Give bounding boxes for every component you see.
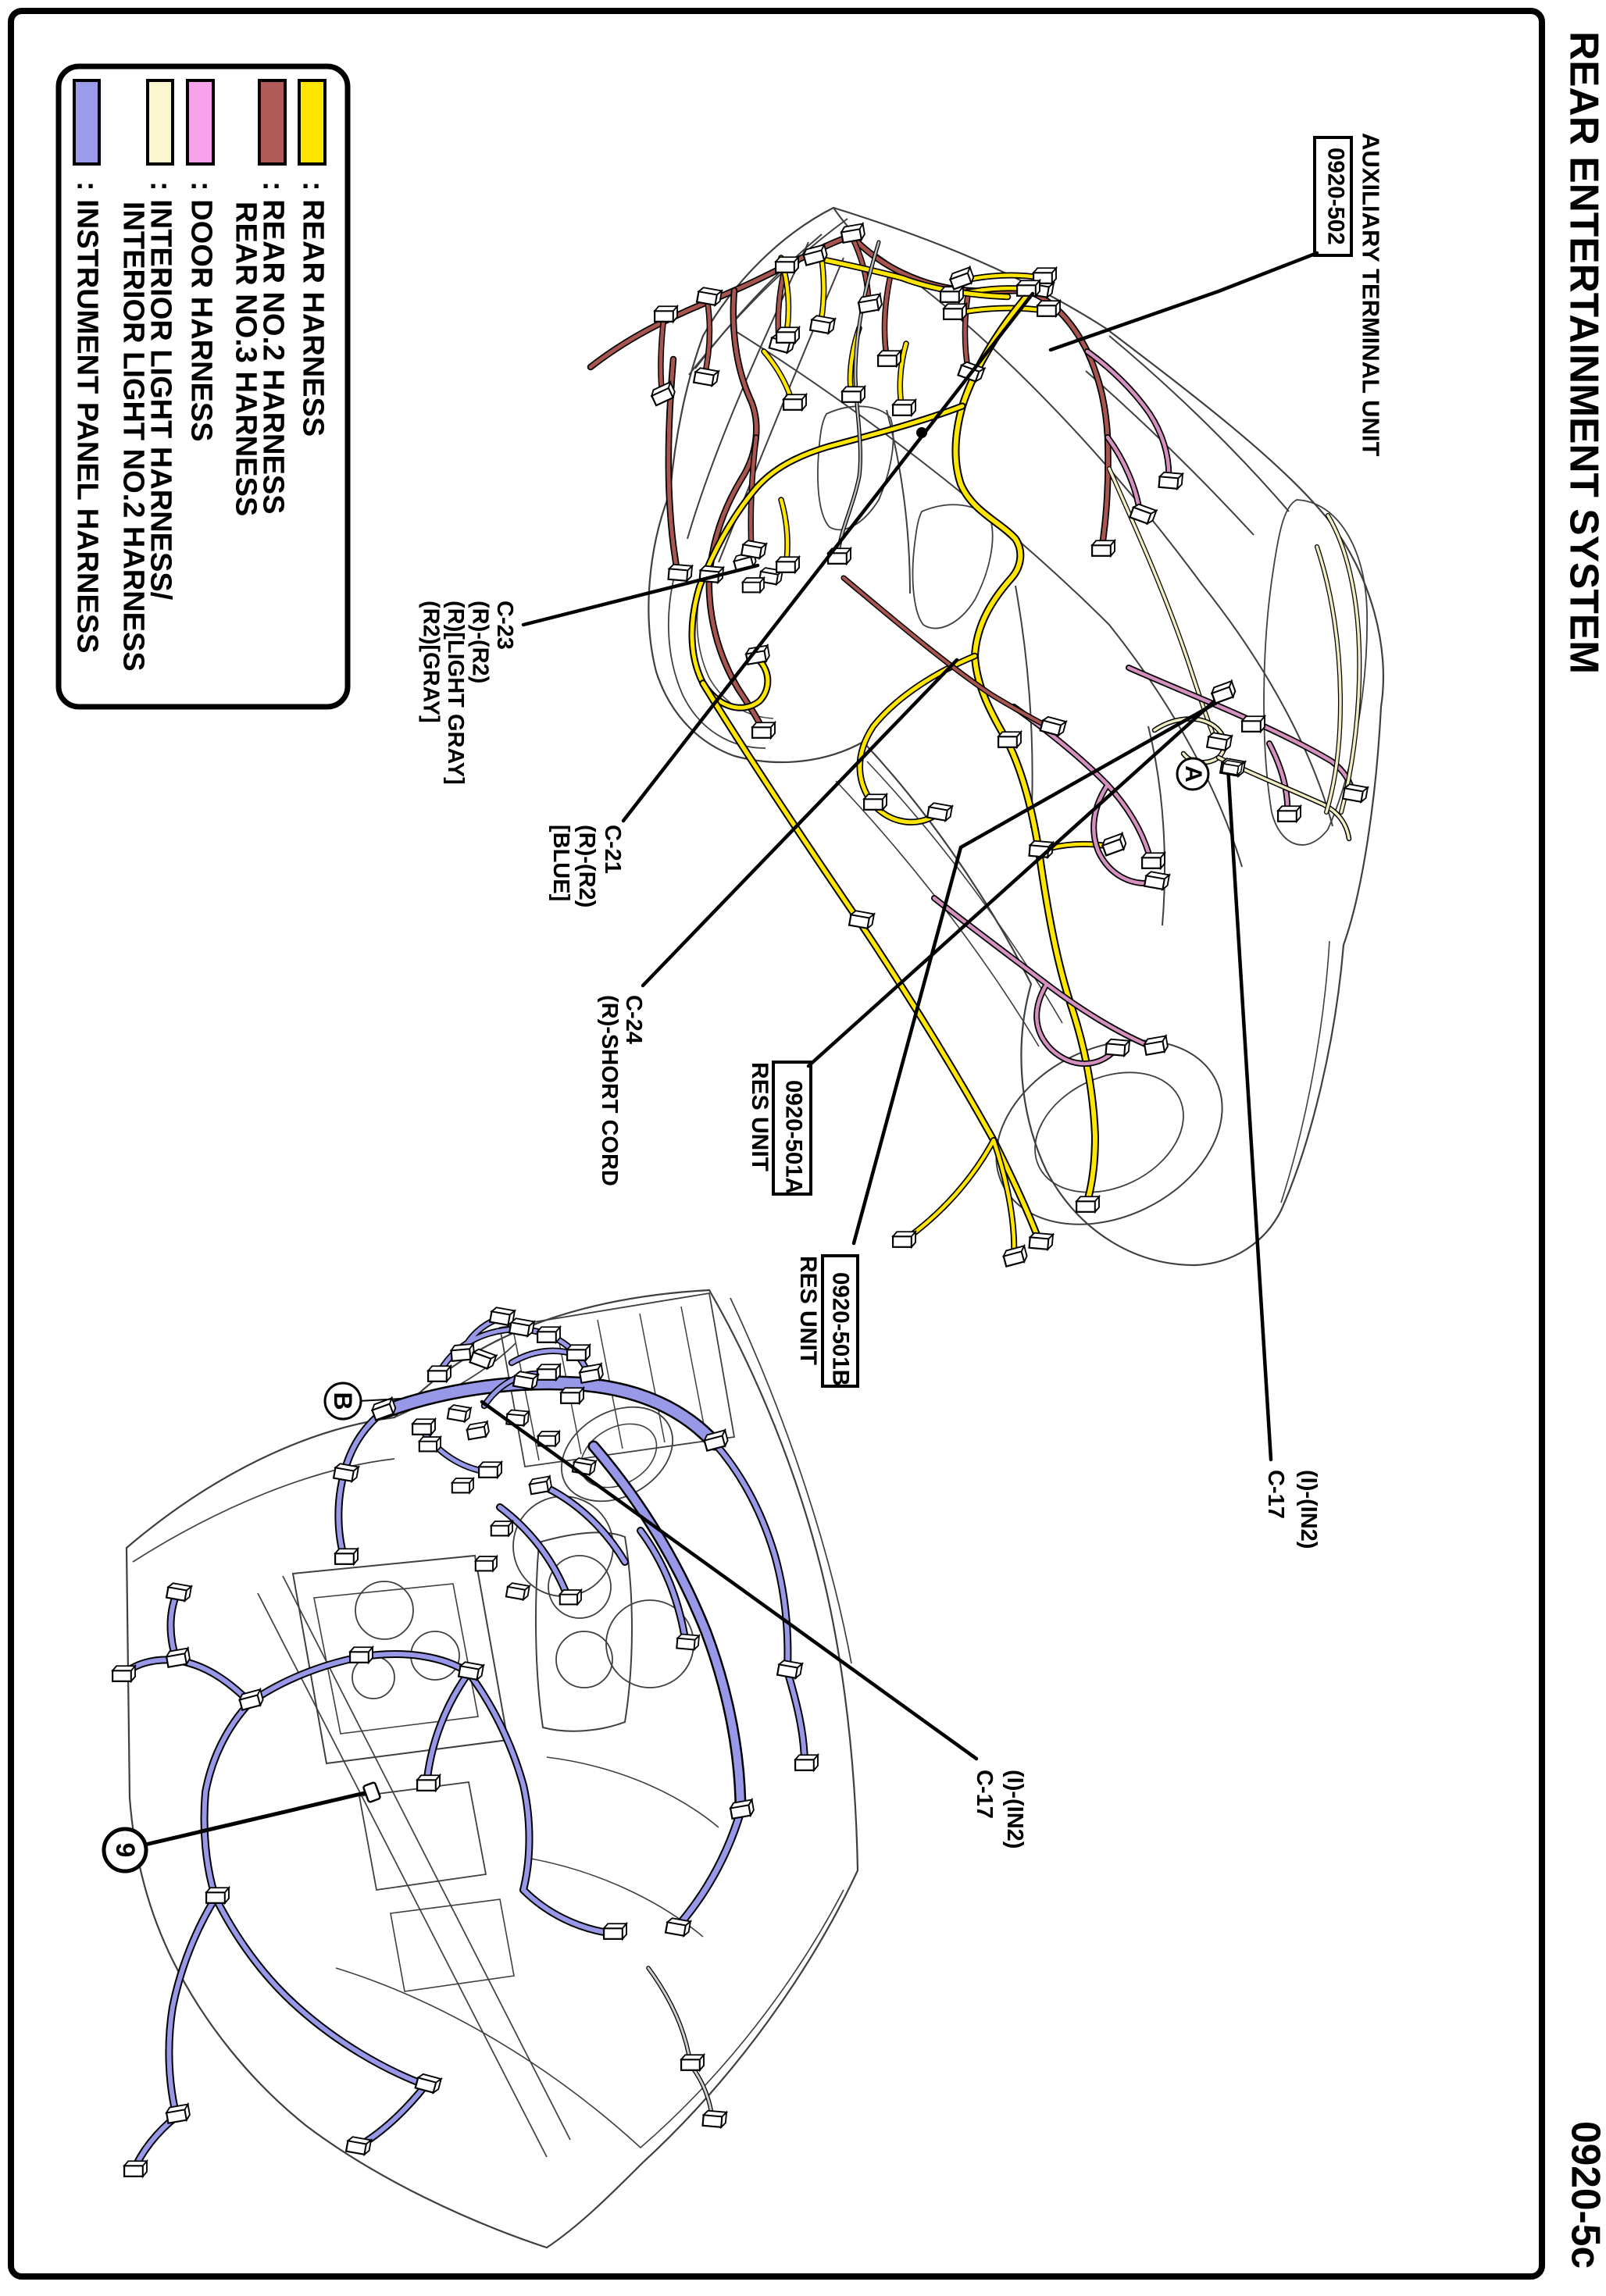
svg-text:(R)-(R2): (R)-(R2) — [574, 825, 599, 907]
svg-text:C-23: C-23 — [492, 601, 517, 650]
svg-text:A: A — [1180, 765, 1206, 783]
svg-text:C-21: C-21 — [600, 825, 625, 874]
svg-text:(R)-SHORT CORD: (R)-SHORT CORD — [597, 995, 622, 1186]
svg-text:: DOOR HARNESS: : DOOR HARNESS — [184, 181, 217, 442]
svg-text:C-24: C-24 — [621, 995, 646, 1044]
svg-text:REAR ENTERTAINMENT SYSTEM: REAR ENTERTAINMENT SYSTEM — [1561, 31, 1606, 674]
svg-text:(I)-(IN2): (I)-(IN2) — [1296, 1470, 1321, 1549]
svg-text:C-17: C-17 — [1263, 1470, 1288, 1519]
svg-text:INTERIOR LIGHT NO.2 HARNESS: INTERIOR LIGHT NO.2 HARNESS — [116, 201, 149, 672]
svg-text:REAR NO.3 HARNESS: REAR NO.3 HARNESS — [229, 201, 262, 516]
svg-text:0920-501B: 0920-501B — [828, 1272, 854, 1386]
svg-text:RES UNIT: RES UNIT — [795, 1256, 821, 1365]
svg-text:C-17: C-17 — [972, 1770, 997, 1819]
svg-text:0920-5c: 0920-5c — [1563, 2121, 1606, 2269]
svg-text:(R)[LIGHT GRAY]: (R)[LIGHT GRAY] — [443, 601, 468, 785]
svg-text:9: 9 — [110, 1843, 140, 1858]
svg-text:[BLUE]: [BLUE] — [548, 825, 573, 901]
svg-text:0920-502: 0920-502 — [1323, 148, 1349, 245]
svg-text:0920-501A: 0920-501A — [781, 1080, 807, 1194]
svg-text:B: B — [329, 1392, 357, 1410]
svg-text:(R2)[GRAY]: (R2)[GRAY] — [418, 601, 443, 723]
svg-text:(R)-(R2): (R)-(R2) — [467, 601, 492, 683]
svg-text:(I)-(IN2): (I)-(IN2) — [1002, 1770, 1027, 1849]
svg-text:: INSTRUMENT PANEL HARNESS: : INSTRUMENT PANEL HARNESS — [70, 181, 103, 654]
svg-text:RES UNIT: RES UNIT — [747, 1062, 773, 1171]
svg-text:: REAR HARNESS: : REAR HARNESS — [296, 181, 329, 437]
svg-text:AUXILIARY TERMINAL UNIT: AUXILIARY TERMINAL UNIT — [1357, 133, 1384, 457]
